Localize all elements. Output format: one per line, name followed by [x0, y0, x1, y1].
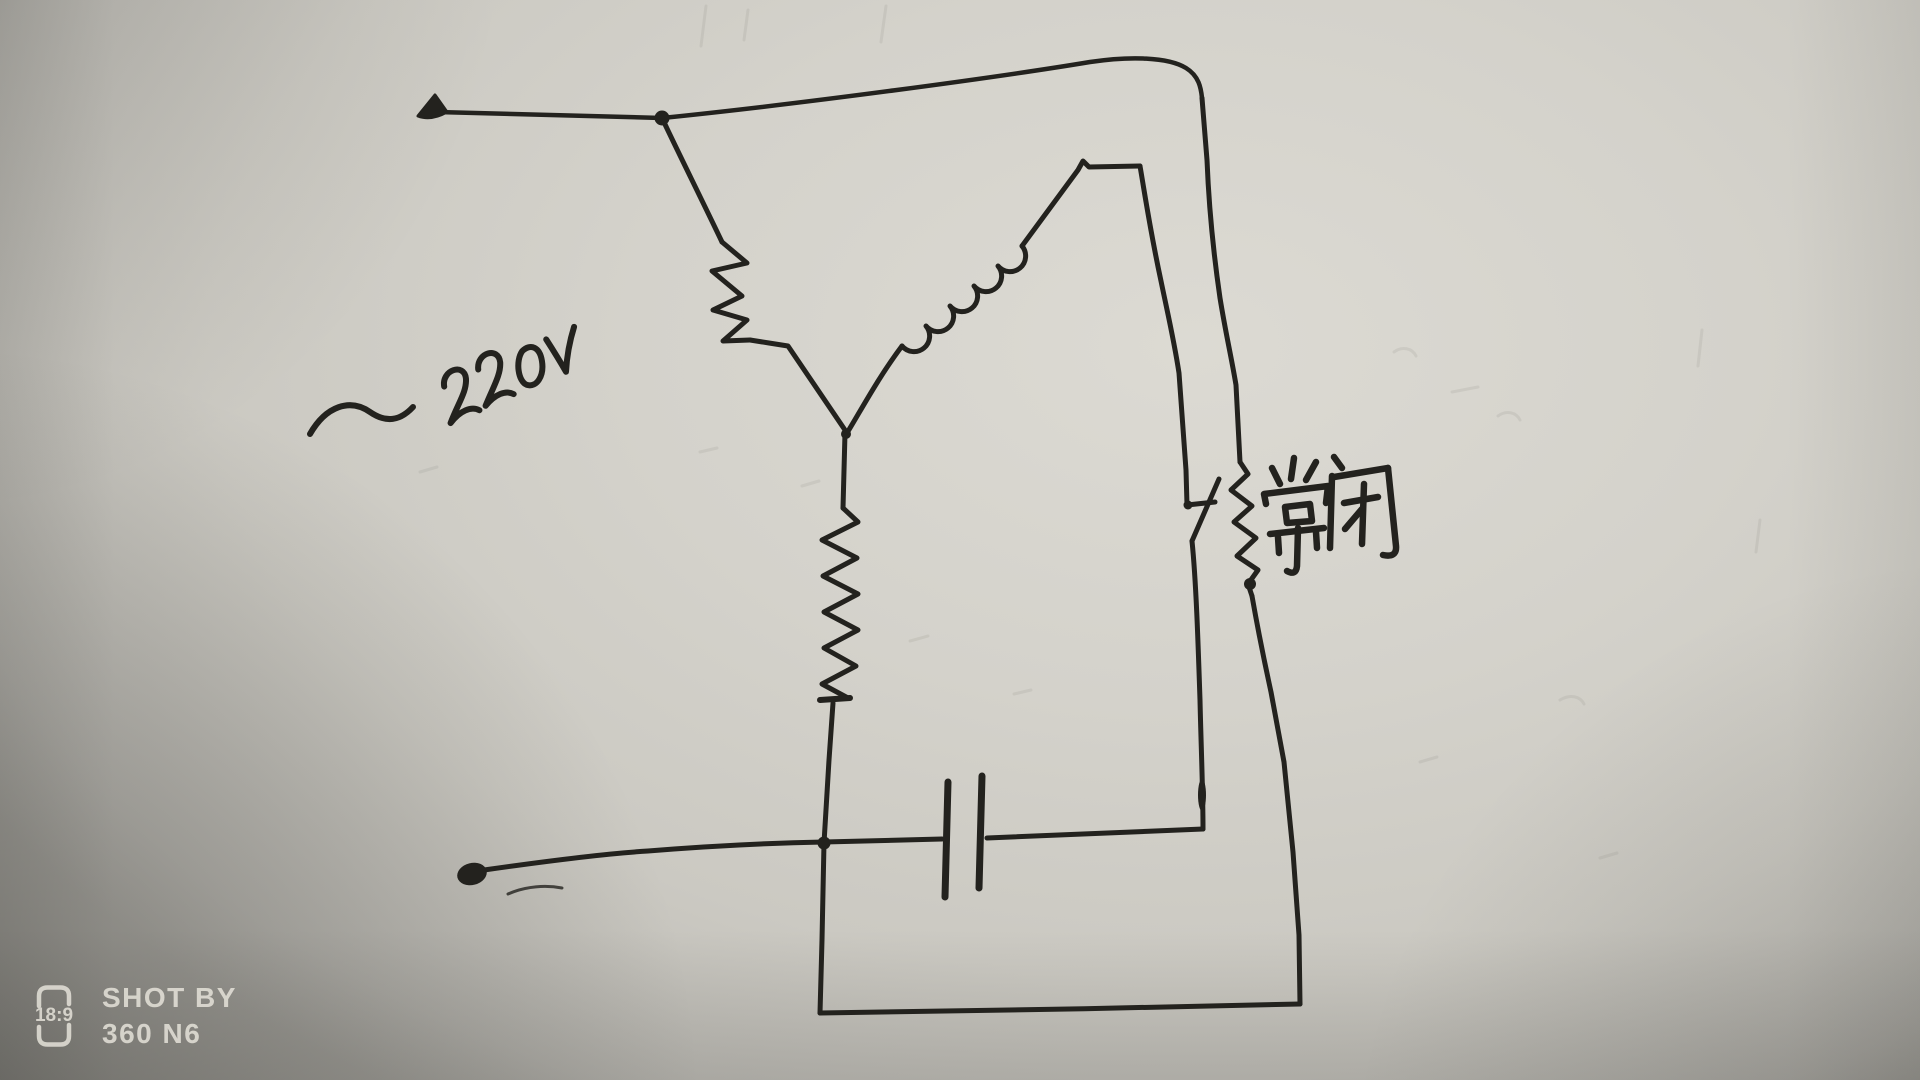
centrifugal-switch-blade — [1192, 479, 1219, 541]
contact-label-drawing — [1264, 457, 1396, 573]
bottom-supply-wire — [455, 837, 831, 895]
top-supply-wire — [418, 58, 1202, 125]
watermark-line2: 360 N6 — [102, 1016, 237, 1052]
bottom-rail — [820, 1004, 1300, 1013]
normally-closed-contact — [1231, 462, 1258, 596]
starting-capacitor — [824, 776, 982, 897]
main-winding — [662, 118, 847, 433]
start-winding — [847, 161, 1140, 433]
aspect-ratio-badge: 18:9 — [30, 981, 78, 1051]
start-winding-coil — [902, 246, 1026, 352]
circuit-drawing — [0, 0, 1920, 1080]
capacitor-plate-left — [945, 782, 948, 897]
ac-source-terminal-bottom — [455, 860, 489, 889]
paper-marks — [420, 6, 1760, 858]
cross-junction-dot — [818, 837, 831, 850]
capacitor-plate-right — [979, 776, 982, 888]
nc-contact-branch — [820, 98, 1300, 1013]
run-winding — [820, 429, 858, 843]
paper-photo: ~220V 常闭 18:9 SHOT BY 360 N6 — [0, 0, 1920, 1080]
stray-pen-mark — [508, 886, 562, 894]
watermark-text: SHOT BY 360 N6 — [102, 980, 237, 1052]
watermark: 18:9 SHOT BY 360 N6 — [30, 980, 237, 1052]
aspect-ratio-text: 18:9 — [35, 1005, 73, 1027]
voltage-label-drawing — [310, 327, 589, 434]
watermark-line1: SHOT BY — [102, 980, 237, 1016]
